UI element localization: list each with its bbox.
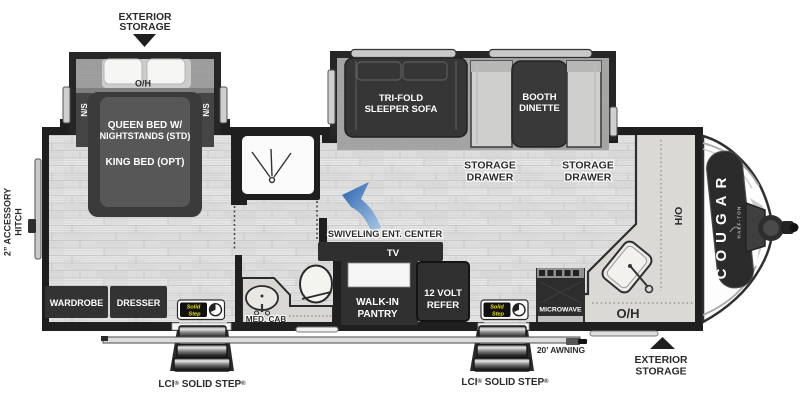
svg-text:N/S: N/S xyxy=(80,103,89,117)
svg-text:COUGAR: COUGAR xyxy=(713,171,730,280)
svg-text:H/O: H/O xyxy=(673,207,685,226)
svg-text:LCI® SOLID STEP®: LCI® SOLID STEP® xyxy=(461,377,549,388)
svg-text:REFER: REFER xyxy=(427,300,459,311)
svg-text:NIGHTSTANDS (STD): NIGHTSTANDS (STD) xyxy=(100,131,191,141)
svg-text:STORAGE: STORAGE xyxy=(562,160,614,172)
svg-text:Solid: Solid xyxy=(490,305,504,311)
svg-text:HALF-TON: HALF-TON xyxy=(737,206,742,239)
svg-text:WARDROBE: WARDROBE xyxy=(50,298,104,308)
svg-text:PANTRY: PANTRY xyxy=(358,309,398,320)
svg-text:HITCH: HITCH xyxy=(14,208,24,236)
svg-text:20’ AWNING: 20’ AWNING xyxy=(537,345,586,355)
svg-text:EXTERIOR: EXTERIOR xyxy=(634,355,688,366)
svg-text:STORAGE: STORAGE xyxy=(464,160,516,172)
svg-text:Solid: Solid xyxy=(187,305,201,311)
svg-text:TRI-FOLD: TRI-FOLD xyxy=(379,93,423,104)
svg-text:DINETTE: DINETTE xyxy=(519,103,560,114)
svg-text:STORAGE: STORAGE xyxy=(635,367,686,378)
svg-text:O/H: O/H xyxy=(135,79,151,89)
svg-text:TV: TV xyxy=(387,248,400,259)
svg-text:DRAWER: DRAWER xyxy=(565,172,612,184)
svg-text:WALK-IN: WALK-IN xyxy=(356,297,399,308)
svg-text:DRESSER: DRESSER xyxy=(117,298,161,308)
svg-text:12 VOLT: 12 VOLT xyxy=(424,288,462,299)
svg-text:MICROWAVE: MICROWAVE xyxy=(539,307,582,314)
svg-text:O/H: O/H xyxy=(616,306,639,321)
svg-text:2” ACCESSORY: 2” ACCESSORY xyxy=(3,188,13,256)
svg-text:LCI® SOLID STEP®: LCI® SOLID STEP® xyxy=(158,379,246,390)
svg-text:DRAWER: DRAWER xyxy=(467,172,514,184)
svg-text:SWIVELING ENT. CENTER: SWIVELING ENT. CENTER xyxy=(328,229,443,239)
svg-text:STORAGE: STORAGE xyxy=(119,22,170,33)
svg-text:Step: Step xyxy=(492,312,505,318)
svg-text:BOOTH: BOOTH xyxy=(522,92,556,103)
svg-text:SLEEPER SOFA: SLEEPER SOFA xyxy=(365,104,438,115)
svg-text:Step: Step xyxy=(189,312,202,318)
svg-text:QUEEN BED W/: QUEEN BED W/ xyxy=(108,120,183,131)
svg-text:N/S: N/S xyxy=(202,103,211,117)
svg-text:KING BED (OPT): KING BED (OPT) xyxy=(106,157,185,168)
